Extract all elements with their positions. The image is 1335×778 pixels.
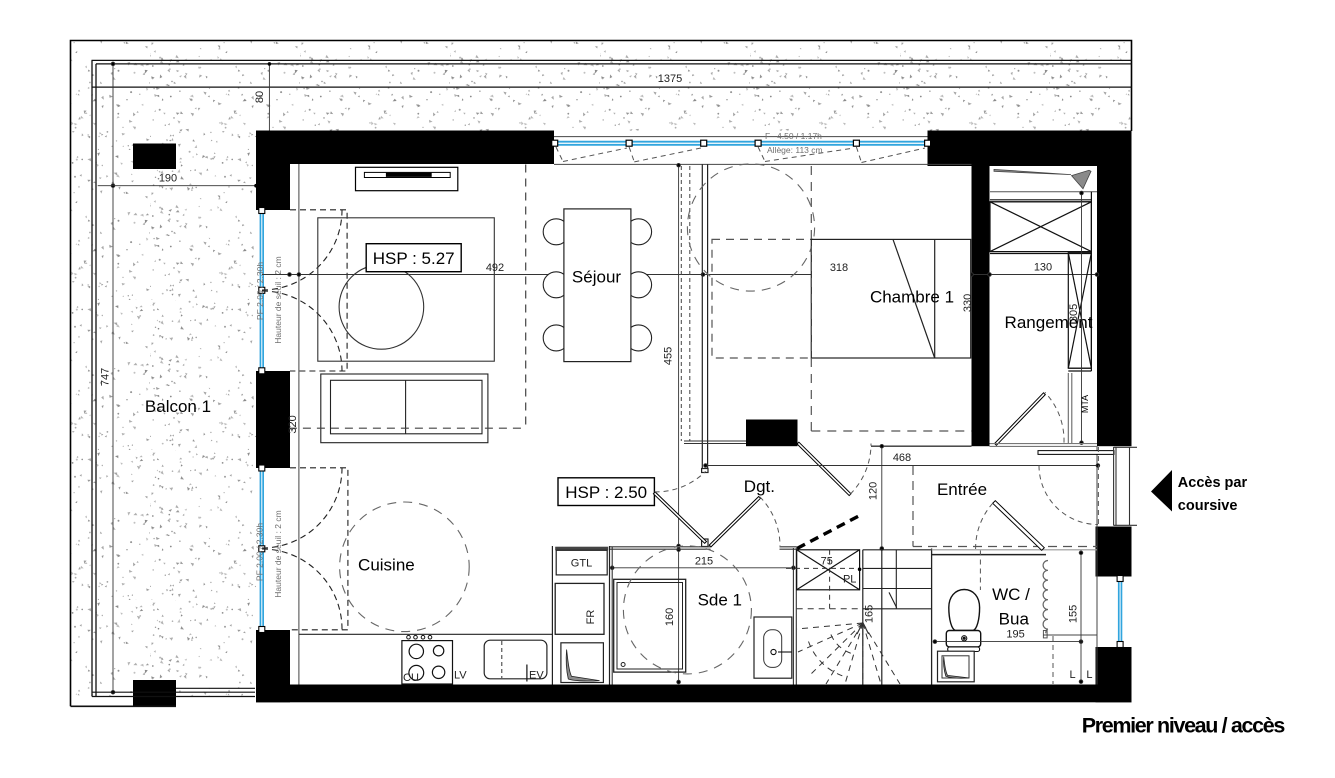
svg-text:330: 330: [962, 294, 974, 312]
svg-text:1375: 1375: [658, 73, 682, 85]
svg-text:Séjour: Séjour: [572, 268, 621, 287]
svg-text:Entrée: Entrée: [937, 480, 987, 499]
svg-text:CU: CU: [403, 672, 419, 684]
svg-text:Cuisine: Cuisine: [358, 556, 415, 575]
svg-text:F: F: [765, 131, 770, 141]
svg-text:468: 468: [893, 452, 911, 464]
svg-text:HSP : 2.50: HSP : 2.50: [565, 483, 647, 502]
svg-text:455: 455: [663, 347, 675, 365]
svg-text:EV: EV: [529, 670, 544, 682]
svg-text:Chambre 1: Chambre 1: [870, 288, 954, 307]
svg-text:155: 155: [1068, 605, 1080, 623]
svg-text:195: 195: [1006, 629, 1024, 641]
svg-text:Hauteur de seuil : 2 cm: Hauteur de seuil : 2 cm: [273, 510, 283, 597]
svg-text:Sde 1: Sde 1: [698, 591, 742, 610]
svg-text:747: 747: [100, 368, 112, 386]
svg-text:Premier niveau / accès: Premier niveau / accès: [1082, 714, 1286, 738]
svg-text:320: 320: [287, 415, 299, 433]
svg-text:165: 165: [864, 605, 876, 623]
svg-text:4.50 / 1.17h: 4.50 / 1.17h: [777, 131, 822, 141]
svg-text:HSP : 5.27: HSP : 5.27: [373, 249, 455, 268]
svg-text:coursive: coursive: [1178, 498, 1238, 514]
svg-text:130: 130: [1034, 262, 1052, 274]
svg-text:75: 75: [821, 556, 833, 568]
svg-text:120: 120: [868, 482, 880, 500]
svg-text:PF 2.00 / 2.30h: PF 2.00 / 2.30h: [255, 523, 265, 581]
svg-text:190: 190: [159, 173, 177, 185]
svg-text:80: 80: [254, 91, 266, 103]
svg-text:Dgt.: Dgt.: [744, 477, 775, 496]
svg-text:LV: LV: [454, 670, 467, 682]
svg-text:GTL: GTL: [571, 558, 592, 570]
svg-text:MTA: MTA: [1080, 395, 1090, 413]
svg-text:PF 2.00 / 2.30h: PF 2.00 / 2.30h: [255, 262, 265, 320]
svg-text:L L: L L: [1070, 669, 1097, 681]
svg-text:Balcon 1: Balcon 1: [145, 397, 211, 416]
svg-text:WC /: WC /: [992, 585, 1030, 604]
svg-text:492: 492: [486, 262, 504, 274]
svg-text:215: 215: [695, 556, 713, 568]
svg-text:FR: FR: [585, 610, 597, 625]
svg-text:Hauteur de seuil : 2 cm: Hauteur de seuil : 2 cm: [273, 256, 283, 343]
svg-text:Allège: 113 cm: Allège: 113 cm: [767, 145, 823, 155]
svg-text:318: 318: [830, 262, 848, 274]
svg-text:Bua: Bua: [999, 610, 1030, 629]
svg-text:Accès par: Accès par: [1178, 475, 1248, 491]
svg-text:160: 160: [664, 608, 676, 626]
svg-text:PL: PL: [843, 574, 856, 586]
svg-text:Rangement: Rangement: [1005, 313, 1093, 332]
